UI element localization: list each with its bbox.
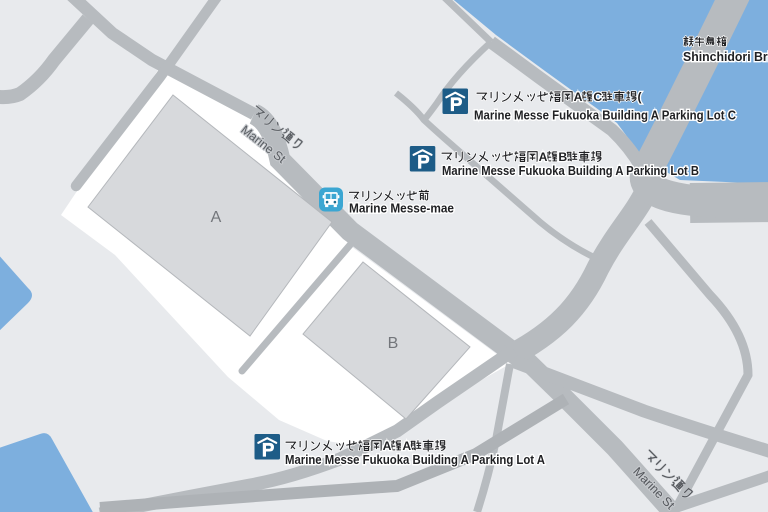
svg-text:Marine Messe Fukuoka Building: Marine Messe Fukuoka Building A Parking … xyxy=(442,164,699,178)
svg-text:B: B xyxy=(558,150,567,164)
svg-text:A: A xyxy=(574,90,583,104)
svg-text:Shinchidori Bridge: Shinchidori Bridge xyxy=(683,50,768,64)
svg-text:Marine Messe Fukuoka Building: Marine Messe Fukuoka Building A Parking … xyxy=(474,108,736,122)
svg-text:Marine Messe-mae: Marine Messe-mae xyxy=(349,202,454,216)
svg-text:A: A xyxy=(539,150,548,164)
svg-text:A: A xyxy=(211,209,222,226)
svg-text:B: B xyxy=(388,335,399,352)
svg-text:A: A xyxy=(383,439,392,453)
svg-text:Marine Messe Fukuoka Building: Marine Messe Fukuoka Building A Parking … xyxy=(285,453,545,467)
svg-text:A: A xyxy=(402,439,411,453)
svg-text:C: C xyxy=(593,90,602,104)
